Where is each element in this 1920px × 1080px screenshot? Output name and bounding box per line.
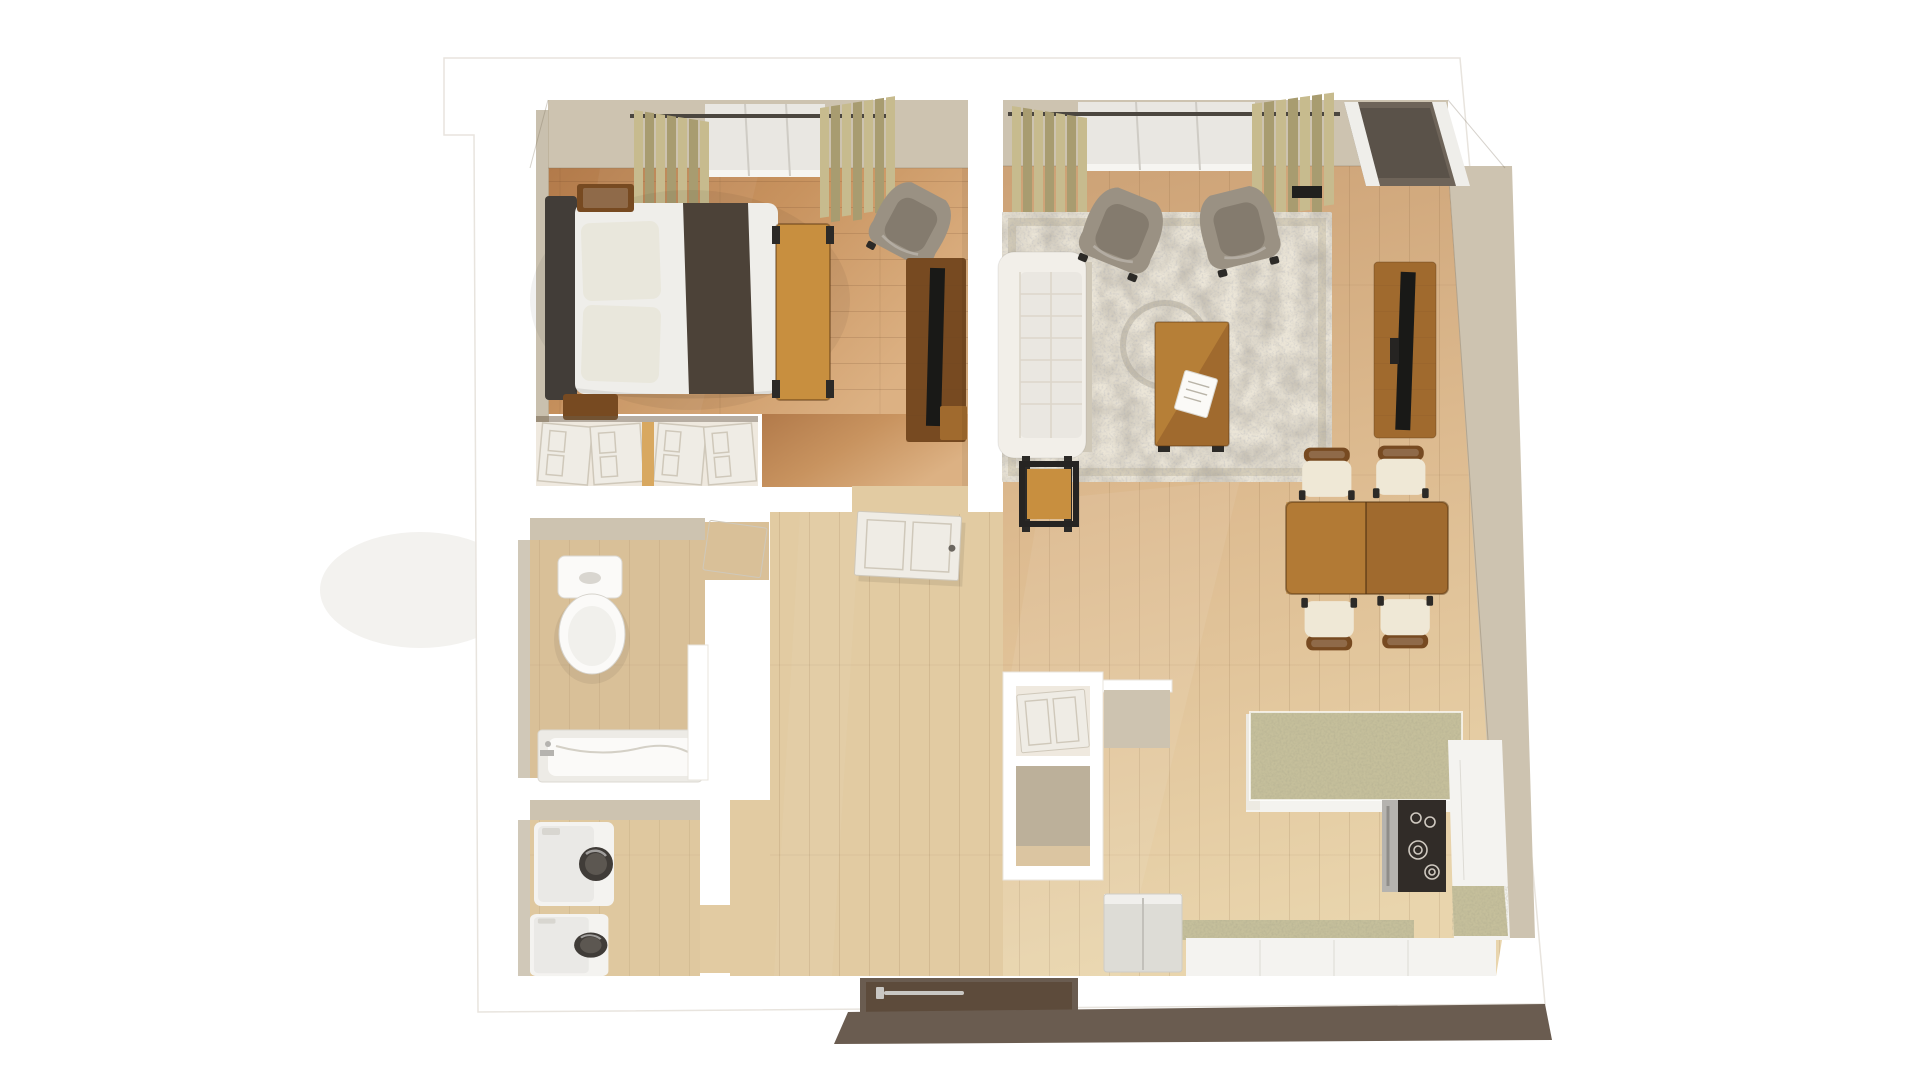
tub-basin [548,738,694,776]
toilet [554,556,630,684]
side-table-top [1027,469,1071,519]
dining-table [1286,502,1448,594]
dryer [530,914,608,976]
bed-pillow [581,305,662,384]
dining-chair [1373,446,1429,498]
bedroom-closet [536,416,758,486]
bathroom-door [703,520,769,580]
tub-faucet [540,750,554,756]
cooktop [1398,800,1446,892]
bed-throw-blanket [683,203,754,394]
door-mat [1292,186,1322,198]
window-sill [705,170,825,177]
dining-chair [1301,598,1357,650]
oven-door [1382,800,1400,892]
bench-top [776,224,830,400]
bedroom-doorway [852,486,968,514]
nightstand-top-surface [583,188,628,208]
entry-door-handle [884,991,964,995]
wing-wall-face [1104,690,1170,748]
bed-pillow [581,221,662,302]
coffee-table [1155,322,1229,452]
washer [534,822,614,906]
toilet-flush-button [579,572,601,584]
laundry-west-wall-face [518,820,530,976]
toilet-seat [568,606,616,666]
media-console [1374,262,1436,438]
bathtub [538,730,702,782]
bed-bench [772,224,834,400]
closet-divider [642,422,654,486]
hall-closet-block [1003,672,1103,880]
window-sill [1078,164,1255,171]
tv-stand [1390,338,1399,364]
dining-table-grain [1286,502,1366,594]
laundry-doorway [700,905,770,973]
bath-west-wall-face [518,540,530,778]
entry-door-lock-plate [876,987,884,999]
divider-wall-shade [962,168,968,486]
bath-partition-wall [688,645,708,780]
cabinet-fronts-south [1186,938,1496,976]
room-bedroom [530,96,968,487]
bedroom-dresser-tv [906,258,967,442]
dining-chair [1299,448,1355,500]
bedroom-door-open [854,511,965,586]
bath-north-wall-face [530,518,705,540]
floorplan-svg [0,0,1920,1080]
range [1382,800,1446,892]
kitchen-wing-wall [1100,680,1172,748]
entry-door [866,982,1072,1012]
kitchen-right-cabinets [1448,740,1510,940]
refrigerator [1104,894,1182,972]
sofa [998,252,1092,458]
dining-chair [1377,596,1433,648]
tub-control [545,741,551,747]
door-leaf [854,511,961,580]
bed-headboard [545,196,577,400]
laundry-north-wall-face [530,800,700,820]
kitchen-island [1246,712,1462,812]
floorplan-canvas [0,0,1920,1080]
closet-alcove-floor [1016,846,1090,866]
